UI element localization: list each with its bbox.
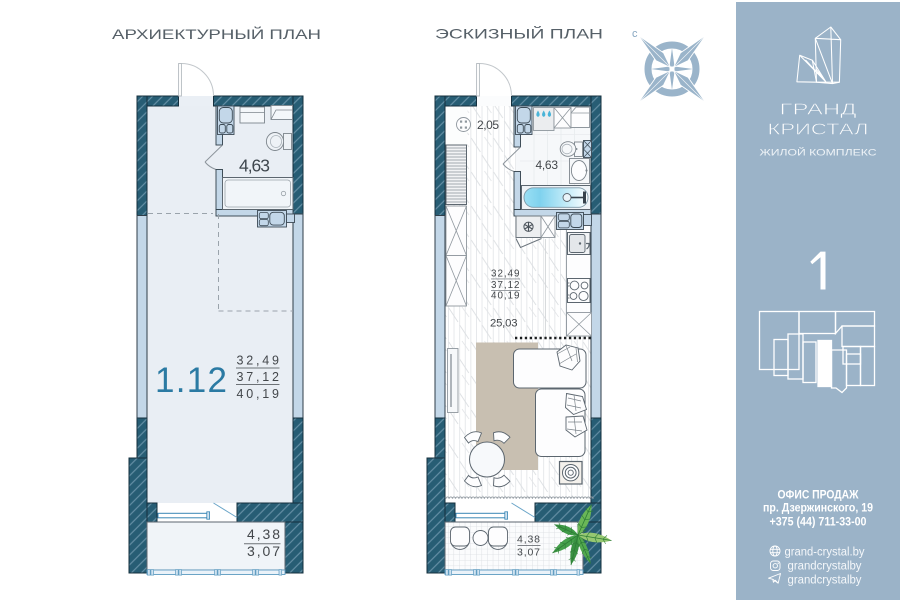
svg-text:grand-crystal.by: grand-crystal.by [785,547,865,559]
svg-text:4,38: 4,38 [517,534,540,546]
svg-text:ЖИЛОЙ КОМПЛЕКС: ЖИЛОЙ КОМПЛЕКС [760,147,877,159]
svg-text:40,19: 40,19 [491,290,520,301]
svg-text:32,49: 32,49 [491,268,520,279]
svg-text:4,38: 4,38 [247,526,280,542]
svg-text:2,05: 2,05 [477,118,499,132]
svg-text:АРХИЕКТУРНЫЙ ПЛАН: АРХИЕКТУРНЫЙ ПЛАН [112,25,321,42]
svg-text:с: с [632,28,638,40]
svg-text:+375 (44) 711-33-00: +375 (44) 711-33-00 [770,515,867,529]
svg-text:4,63: 4,63 [536,158,559,172]
svg-text:3,07: 3,07 [517,547,540,559]
svg-text:3,07: 3,07 [247,543,280,559]
svg-text:32,49: 32,49 [237,354,280,368]
svg-text:grandcrystalby: grandcrystalby [788,561,862,573]
svg-text:1.12: 1.12 [155,361,227,400]
svg-text:ГРАНД: ГРАНД [780,102,857,119]
svg-text:37,12: 37,12 [491,280,520,291]
svg-text:grandcrystalby: grandcrystalby [788,575,862,587]
svg-text:40,19: 40,19 [237,387,280,401]
svg-text:ЭСКИЗНЫЙ ПЛАН: ЭСКИЗНЫЙ ПЛАН [435,25,603,42]
svg-text:4,63: 4,63 [239,156,270,176]
svg-text:25,03: 25,03 [490,318,518,330]
svg-text:КРИСТАЛ: КРИСТАЛ [768,122,869,139]
svg-text:пр. Дзержинского, 19: пр. Дзержинского, 19 [763,503,873,515]
svg-text:ОФИС ПРОДАЖ: ОФИС ПРОДАЖ [778,490,860,502]
svg-text:37,12: 37,12 [237,370,280,384]
